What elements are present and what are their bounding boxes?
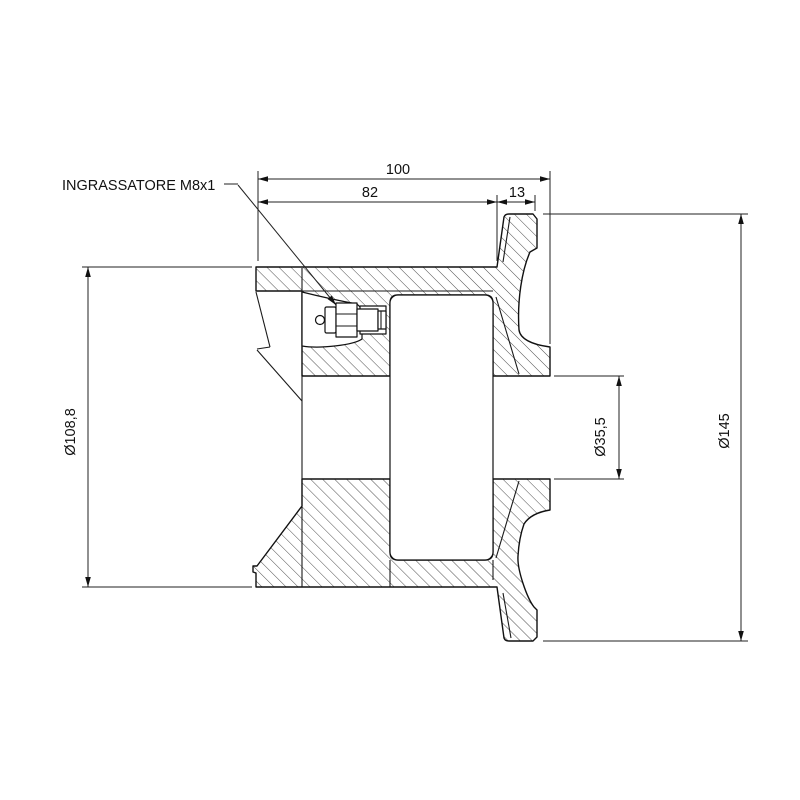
dim-13-label: 13 bbox=[509, 185, 525, 201]
dim-bore-diameter: Ø35,5 bbox=[554, 376, 624, 479]
technical-drawing: 100 82 13 Ø108,8 Ø35,5 Ø145 INGRASSATORE… bbox=[0, 0, 800, 800]
dim-flange-thickness: 13 bbox=[497, 185, 535, 211]
grease-chamber bbox=[390, 295, 493, 560]
dim-145-label: Ø145 bbox=[717, 413, 733, 448]
callout-label: INGRASSATORE M8x1 bbox=[62, 178, 215, 194]
drawing-page: 100 82 13 Ø108,8 Ø35,5 Ø145 INGRASSATORE… bbox=[0, 0, 800, 800]
dim-82-label: 82 bbox=[362, 185, 378, 201]
dim-wheel-width: 82 bbox=[258, 185, 497, 261]
dim-100-label: 100 bbox=[386, 162, 410, 178]
dim-108-label: Ø108,8 bbox=[63, 408, 79, 456]
dim-35-label: Ø35,5 bbox=[593, 417, 609, 457]
dim-flange-diameter: Ø145 bbox=[543, 214, 748, 641]
dim-wheel-diameter: Ø108,8 bbox=[63, 267, 252, 587]
